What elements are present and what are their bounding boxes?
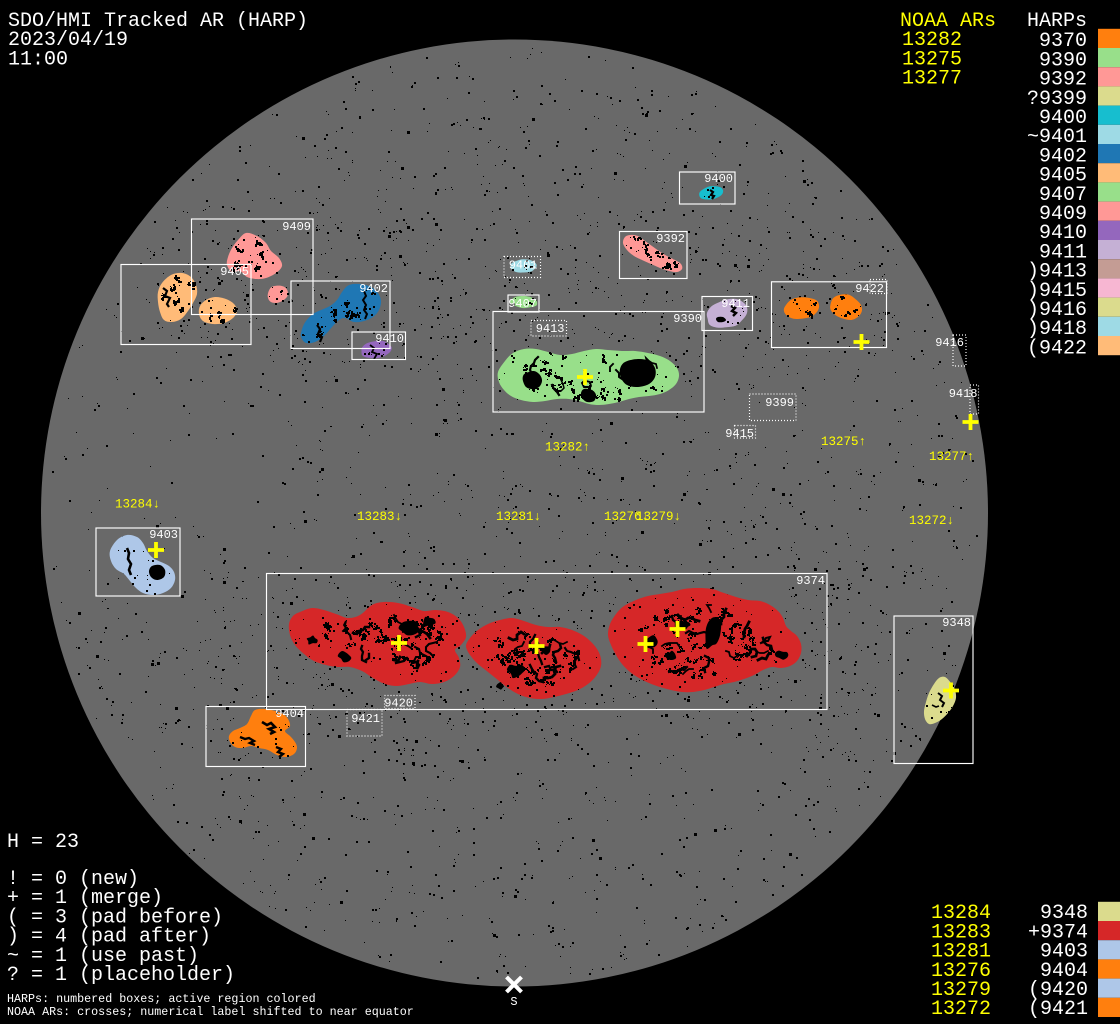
svg-text:9403: 9403 <box>149 528 178 542</box>
svg-text:? = 1 (placeholder): ? = 1 (placeholder) <box>7 964 235 987</box>
svg-text:NOAA ARs: crosses; numerical l: NOAA ARs: crosses; numerical label shift… <box>7 1005 414 1019</box>
svg-text:9420: 9420 <box>384 697 413 711</box>
svg-text:9400: 9400 <box>704 172 733 186</box>
svg-text:13272: 13272 <box>931 998 991 1021</box>
svg-text:9409: 9409 <box>282 220 311 234</box>
svg-text:11:00: 11:00 <box>8 48 68 71</box>
svg-text:13283↓: 13283↓ <box>357 510 402 524</box>
svg-text:13272↓: 13272↓ <box>909 514 954 528</box>
svg-text:S: S <box>510 995 517 1009</box>
svg-text:13282↑: 13282↑ <box>545 441 590 455</box>
svg-text:13277↑: 13277↑ <box>929 450 974 464</box>
svg-text:9410: 9410 <box>375 332 404 346</box>
svg-text:(9422: (9422 <box>1027 337 1087 360</box>
svg-text:9392: 9392 <box>656 232 685 246</box>
svg-text:9407: 9407 <box>508 297 537 311</box>
svg-text:9390: 9390 <box>673 312 702 326</box>
svg-text:(9421: (9421 <box>1028 998 1088 1021</box>
svg-text:HARPs: numbered boxes; active: HARPs: numbered boxes; active region col… <box>7 992 316 1006</box>
svg-text:9413: 9413 <box>536 322 565 336</box>
svg-text:9415: 9415 <box>725 427 754 441</box>
svg-text:9404: 9404 <box>275 707 304 721</box>
svg-text:9416: 9416 <box>935 336 964 350</box>
svg-text:9374: 9374 <box>796 574 825 588</box>
svg-text:9399: 9399 <box>765 396 794 410</box>
svg-text:9348: 9348 <box>942 616 971 630</box>
svg-text:9401: 9401 <box>509 259 538 273</box>
svg-text:13281↓: 13281↓ <box>496 510 541 524</box>
svg-text:9418: 9418 <box>949 387 978 401</box>
svg-text:13275↑: 13275↑ <box>821 435 866 449</box>
svg-text:H = 23: H = 23 <box>7 831 79 854</box>
svg-text:13279↓: 13279↓ <box>636 510 681 524</box>
svg-text:13284↓: 13284↓ <box>115 498 160 512</box>
svg-text:9421: 9421 <box>351 712 380 726</box>
svg-text:9405: 9405 <box>220 265 249 279</box>
svg-text:9402: 9402 <box>359 282 388 296</box>
svg-text:13277: 13277 <box>902 68 962 91</box>
svg-text:9411: 9411 <box>721 297 750 311</box>
